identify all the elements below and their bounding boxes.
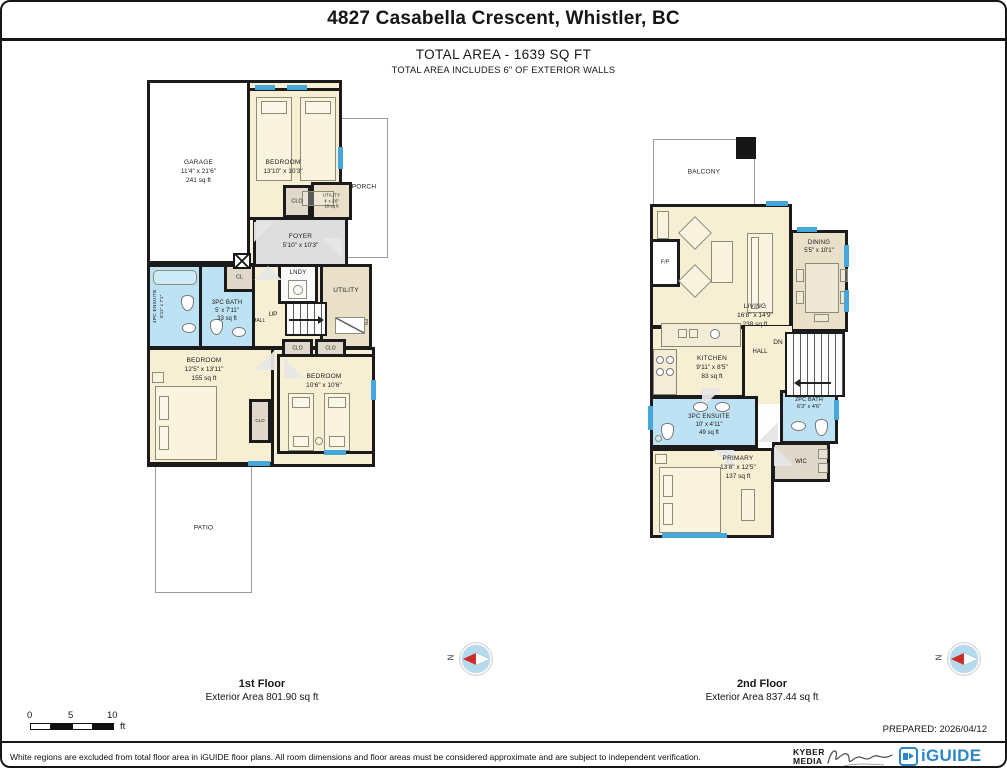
washer-door-icon — [293, 285, 303, 295]
total-area-note: TOTAL AREA INCLUDES 6" OF EXTERIOR WALLS — [2, 65, 1005, 75]
total-area-label: TOTAL AREA - 1639 SQ FT — [2, 47, 1005, 62]
sink-icon — [791, 421, 806, 431]
stove-burner-icon — [666, 356, 674, 364]
armchair-icon — [678, 216, 712, 250]
compass-needle-north — [463, 653, 476, 665]
kitchen-counter — [653, 349, 677, 395]
ensuite-3pc-label: 3PC ENSUITE 10' x 4'11" 49 sq ft — [671, 413, 747, 437]
compass-icon: N — [448, 642, 494, 674]
window-marker — [766, 201, 788, 206]
sink-icon — [232, 327, 246, 337]
pillow-icon — [292, 397, 310, 408]
bench-icon — [657, 211, 669, 239]
prepared-date: PREPARED: 2026/04/12 — [883, 724, 987, 735]
compass-disc — [948, 643, 980, 675]
toilet-icon — [815, 419, 828, 436]
armchair-icon — [678, 264, 712, 298]
bedroom-left-label: BEDROOM 12'5" x 13'11" 155 sq ft — [158, 357, 250, 383]
primary-label: PRIMARY 13'8" x 12'5" 137 sq ft — [701, 455, 775, 481]
door-swing — [758, 422, 778, 442]
closet-label: CLO — [286, 198, 308, 205]
room-bath-2pc: 2PC BATH 6'3" x 4'6" — [780, 390, 838, 444]
compass-disc — [460, 643, 492, 675]
closet-b-label: CLO — [318, 345, 343, 352]
dining-label: DINING 5'5" x 10'1" — [793, 239, 845, 255]
stove-burner-icon — [656, 356, 664, 364]
utility-top-label: UTILITY 4' x 2'6" 10 sq ft — [314, 193, 349, 210]
patio-label: PATIO — [156, 525, 251, 534]
sink-icon — [689, 329, 698, 338]
porch-label: PORCH — [341, 184, 387, 193]
pillow-icon — [159, 396, 169, 420]
balcony-label: BALCONY — [654, 169, 754, 178]
pillow-icon — [159, 426, 169, 450]
window-marker — [324, 450, 346, 455]
pillow-icon — [305, 101, 331, 114]
cooktop-icon — [710, 329, 720, 339]
room-ensuite-3pc: 3PC ENSUITE 10' x 4'11" 49 sq ft — [650, 396, 758, 448]
cl-label: CL — [227, 274, 252, 281]
closet-mid-label: CLO — [252, 418, 268, 424]
coffee-table-icon — [711, 241, 733, 283]
compass-needle-south — [964, 653, 977, 665]
garage-label: GARAGE 11'4" x 21'6" 241 sq ft — [150, 159, 247, 185]
chair-icon — [796, 291, 804, 304]
stairs-icon — [785, 332, 845, 397]
chair-icon — [840, 269, 848, 282]
scale-bar: 0 5 10 ft — [30, 710, 170, 736]
header-divider — [2, 38, 1005, 41]
sink-icon — [678, 329, 687, 338]
chair-icon — [814, 314, 829, 322]
stairs-icon — [285, 302, 327, 336]
sink-icon — [715, 402, 730, 412]
kyber-media-logo: KYBER MEDIA — [793, 748, 825, 767]
window-marker — [662, 533, 727, 538]
stove-burner-icon — [666, 368, 674, 376]
wic-label: WIC — [775, 458, 827, 466]
chair-icon — [796, 269, 804, 282]
room-kitchen: KITCHEN 9'11" x 8'5" 83 sq ft — [650, 326, 745, 398]
scale-tick-5: 5 — [68, 710, 73, 721]
compass-north-label: N — [446, 655, 455, 661]
scale-segment — [51, 723, 72, 730]
utility-mid-label: UTILITY — [323, 287, 369, 296]
disclaimer-text: White regions are excluded from total fl… — [10, 752, 701, 762]
compass-needle-north — [951, 653, 964, 665]
room-dining: DINING 5'5" x 10'1" — [790, 230, 848, 332]
laundry-label: LNDY — [281, 269, 315, 277]
room-fireplace: F/P — [650, 239, 680, 287]
bed-icon — [288, 393, 314, 451]
footboard-icon — [293, 436, 309, 447]
room-utility-mid: UTILITY FN — [320, 264, 372, 349]
wall-block — [736, 137, 756, 159]
bench-icon — [741, 489, 755, 521]
signature-graphic — [824, 743, 896, 768]
stairs-arrow-head — [794, 379, 800, 387]
window-marker — [844, 245, 849, 267]
up-label: UP — [263, 311, 283, 320]
scale-segment — [93, 723, 114, 730]
sofa-icon — [747, 233, 773, 313]
window-marker — [371, 380, 376, 400]
room-laundry: LNDY — [278, 264, 318, 304]
bath-2pc-label: 2PC BATH 6'3" x 4'6" — [783, 397, 835, 412]
room-closet-top: CLO — [283, 185, 311, 218]
dining-table-icon — [805, 263, 839, 313]
window-marker — [834, 400, 839, 420]
bedroom-right-label: BEDROOM 10'6" x 10'6" — [284, 373, 364, 391]
bed-icon — [324, 393, 350, 451]
iguide-logo-text: iGUIDE — [921, 746, 981, 766]
sink-icon — [693, 402, 708, 412]
furnace-icon — [335, 317, 365, 334]
room-primary: PRIMARY 13'8" x 12'5" 137 sq ft — [650, 448, 774, 538]
sofa-cushion-icon — [751, 237, 759, 309]
window-marker — [248, 461, 270, 466]
window-marker — [287, 85, 307, 90]
ensuite-4pc-label: 4PC ENSUITE 5'11" x 7'1" — [152, 275, 166, 338]
scale-tick-0: 0 — [27, 710, 32, 721]
iguide-logo: iGUIDE — [899, 746, 981, 766]
window-marker — [844, 290, 849, 312]
scale-tick-10: 10 — [107, 710, 118, 721]
window-marker — [797, 227, 817, 232]
dn-label: DN — [768, 339, 788, 348]
pillow-icon — [328, 397, 346, 408]
window-marker — [338, 147, 343, 169]
lamp-icon — [315, 437, 323, 445]
room-ensuite-4pc: 4PC ENSUITE 5'11" x 7'1" — [147, 264, 202, 349]
living-label: LIVING 16'8" x 14'9" 238 sq ft — [719, 303, 791, 329]
scale-segment — [30, 723, 51, 730]
bedroom-top-label: BEDROOM 13'10" x 10'3" — [252, 159, 314, 177]
iguide-logo-icon — [899, 747, 918, 766]
hall2-label: HALL — [746, 348, 774, 356]
furnace-label: FN — [363, 319, 369, 325]
window-marker — [255, 85, 275, 90]
stairs-arrow-head — [318, 316, 324, 324]
foyer-label: FOYER 5'10" x 10'3" — [256, 233, 345, 251]
shaft-icon — [233, 253, 251, 269]
compass-needle-south — [476, 653, 489, 665]
stairs-arrow-line — [289, 319, 319, 321]
stove-burner-icon — [656, 368, 664, 376]
kitchen-label: KITCHEN 9'11" x 8'5" 83 sq ft — [681, 355, 743, 381]
scale-unit: ft — [120, 721, 125, 732]
floor1-caption: 1st Floor Exterior Area 801.90 sq ft — [142, 678, 382, 703]
shower-icon — [655, 435, 662, 442]
pillow-icon — [261, 101, 287, 114]
nightstand-icon — [655, 454, 667, 464]
floor2-caption: 2nd Floor Exterior Area 837.44 sq ft — [642, 678, 882, 703]
fireplace-label: F/P — [653, 259, 677, 266]
room-wic: WIC — [772, 442, 830, 482]
pillow-icon — [663, 503, 673, 525]
pillow-icon — [663, 475, 673, 497]
compass-icon: N — [936, 642, 982, 674]
washer-icon — [288, 280, 307, 299]
floor-plan-page: 4827 Casabella Crescent, Whistler, BC TO… — [0, 0, 1007, 768]
closet-a-label: CLO — [285, 345, 310, 352]
sink-icon — [182, 323, 196, 333]
compass-north-label: N — [934, 655, 943, 661]
room-patio: PATIO — [155, 465, 252, 593]
stairs-arrow-line — [799, 382, 831, 384]
bath-3pc-label: 3PC BATH 5' x 7'11" 33 sq ft — [202, 299, 252, 323]
room-closet-mid: CLO — [249, 399, 271, 443]
room-garage: GARAGE 11'4" x 21'6" 241 sq ft — [147, 80, 250, 264]
footboard-icon — [329, 436, 345, 447]
window-marker — [648, 406, 653, 430]
page-title: 4827 Casabella Crescent, Whistler, BC — [2, 8, 1005, 30]
scale-segment — [72, 723, 93, 730]
toilet-icon — [181, 295, 194, 311]
bed-icon — [155, 386, 217, 460]
